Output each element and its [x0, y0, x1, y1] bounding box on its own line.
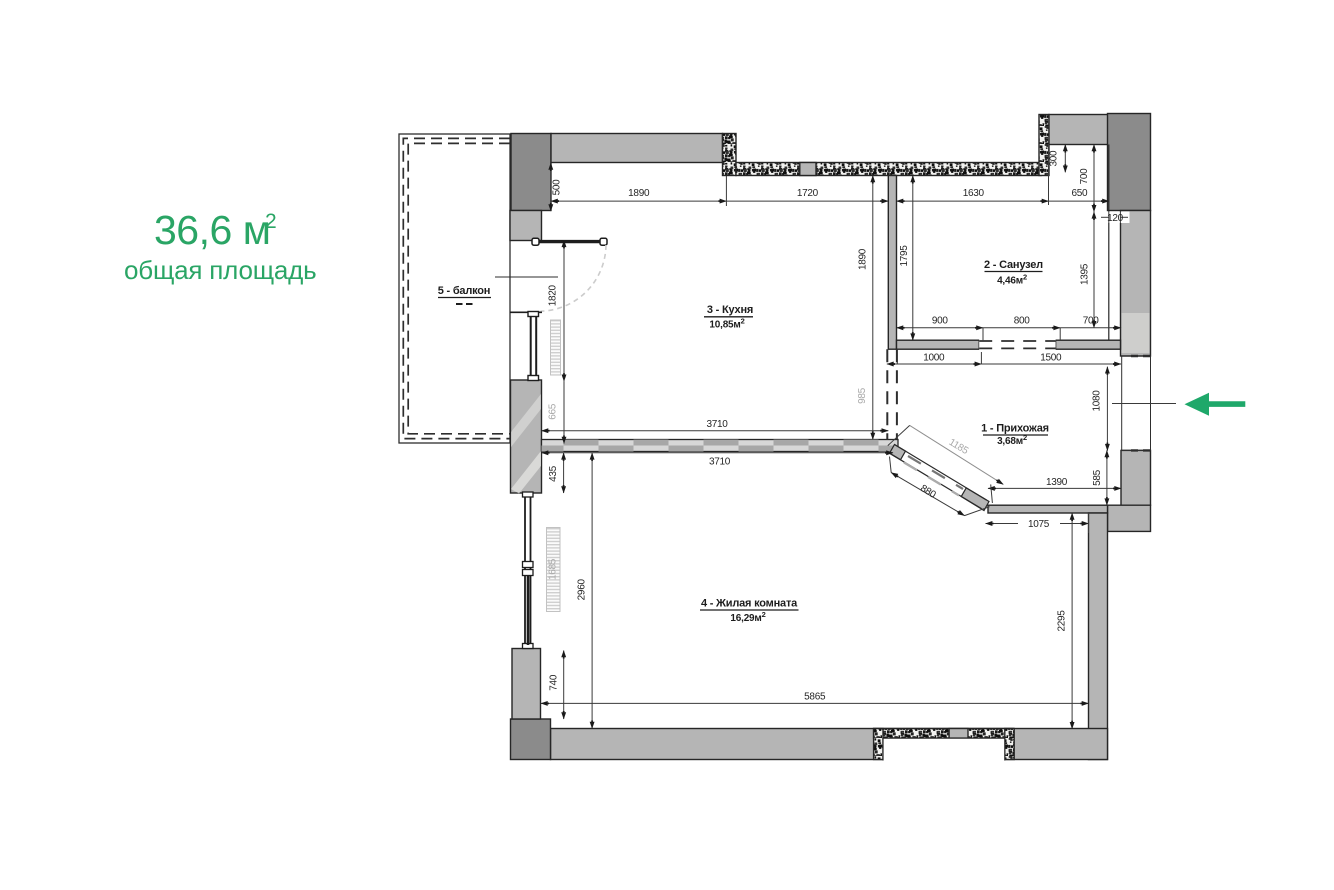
svg-text:800: 800: [1014, 316, 1031, 327]
svg-text:1080: 1080: [1091, 390, 1102, 412]
svg-text:4,46м2: 4,46м2: [997, 273, 1027, 287]
svg-text:1795: 1795: [899, 245, 910, 267]
svg-text:5865: 5865: [804, 692, 826, 703]
svg-text:2: 2: [265, 210, 277, 233]
svg-text:1500: 1500: [1040, 353, 1062, 364]
svg-text:4 - Жилая комната: 4 - Жилая комната: [701, 598, 798, 610]
svg-text:1890: 1890: [628, 188, 650, 199]
svg-text:1890: 1890: [857, 248, 868, 270]
svg-text:500: 500: [552, 179, 563, 196]
svg-text:10,85м2: 10,85м2: [709, 317, 744, 331]
svg-text:общая площадь: общая площадь: [124, 255, 316, 285]
svg-text:120: 120: [1107, 213, 1124, 224]
svg-text:2 - Санузел: 2 - Санузел: [984, 259, 1043, 271]
svg-text:585: 585: [1092, 469, 1103, 486]
svg-text:985: 985: [857, 387, 868, 404]
svg-text:1 - Прихожая: 1 - Прихожая: [981, 423, 1049, 435]
svg-text:2295: 2295: [1057, 610, 1068, 632]
svg-text:1075: 1075: [1028, 519, 1050, 530]
svg-text:1390: 1390: [1046, 477, 1068, 488]
svg-text:3710: 3710: [706, 419, 728, 430]
svg-text:36,6 м: 36,6 м: [154, 207, 270, 253]
svg-text:16,29м2: 16,29м2: [730, 610, 765, 624]
svg-text:1000: 1000: [923, 353, 945, 364]
svg-text:665: 665: [548, 403, 559, 420]
svg-text:2960: 2960: [576, 579, 587, 601]
svg-text:1720: 1720: [797, 188, 819, 199]
svg-text:1395: 1395: [1080, 263, 1091, 285]
svg-text:300: 300: [1049, 150, 1060, 167]
svg-text:650: 650: [1072, 188, 1089, 199]
svg-text:1685: 1685: [548, 558, 559, 580]
svg-text:1820: 1820: [548, 284, 559, 306]
svg-text:700: 700: [1083, 316, 1100, 327]
svg-text:1630: 1630: [963, 188, 985, 199]
svg-text:700: 700: [1079, 168, 1090, 185]
svg-text:3 - Кухня: 3 - Кухня: [707, 304, 753, 316]
svg-text:3710: 3710: [709, 457, 731, 468]
svg-text:3,68м2: 3,68м2: [997, 433, 1027, 447]
svg-text:5 - балкон: 5 - балкон: [438, 285, 491, 297]
svg-text:435: 435: [548, 465, 559, 482]
svg-text:740: 740: [549, 674, 560, 691]
svg-text:900: 900: [932, 316, 949, 327]
